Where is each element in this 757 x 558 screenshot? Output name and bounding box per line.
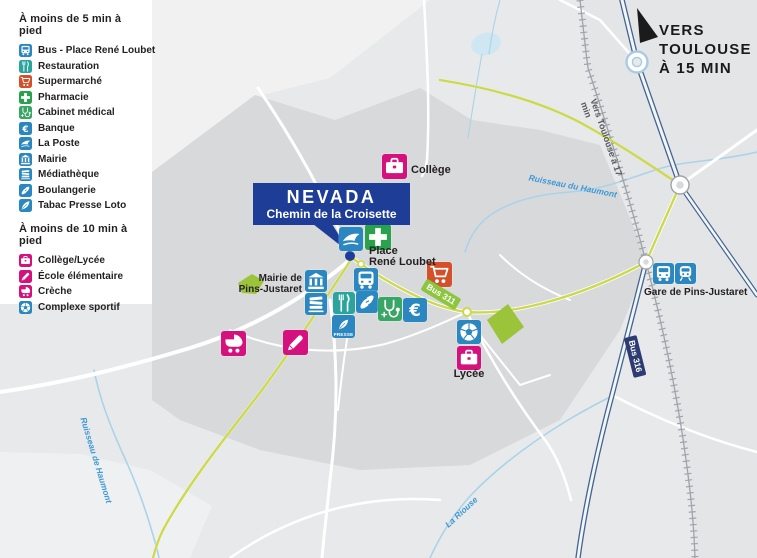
cart-icon (19, 75, 32, 88)
legend-item-label: La Poste (38, 138, 80, 149)
legend-item-complexe-sportif: Complexe sportif (19, 301, 146, 314)
laposte-icon (339, 227, 363, 251)
elementary-school-icon (283, 330, 308, 355)
stroller-icon (19, 285, 32, 298)
legend-item-label: Banque (38, 123, 75, 134)
press-tobacco-icon: PRESSE (332, 315, 355, 338)
lycee-icon (457, 346, 481, 370)
destination-line3: À 15 MIN (659, 59, 752, 78)
place-label-line2: René Loubet (369, 257, 436, 268)
pencil-icon (19, 270, 32, 283)
legend-item-bus: Bus - Place René Loubet (19, 44, 146, 57)
bus-stop-icon (354, 268, 378, 292)
legend-item-creche: Crèche (19, 285, 146, 298)
legend-item-supermarche: Supermarché (19, 75, 146, 88)
nursery-icon (221, 331, 246, 356)
restaurant-icon (19, 60, 32, 73)
legend-item-label: Boulangerie (38, 185, 96, 196)
mairie-label-line1: Mairie de (232, 274, 302, 285)
location-map: PRESSE Collège Place René Loubet Mairie … (0, 0, 757, 558)
legend-item-label: Cabinet médical (38, 107, 115, 118)
laposte-bird-icon (19, 137, 32, 150)
legend-item-label: Restauration (38, 61, 99, 72)
legend-item-label: Supermarché (38, 76, 102, 87)
bus-icon (19, 44, 32, 57)
legend-item-boulangerie: Boulangerie (19, 184, 146, 197)
project-name: NEVADA (287, 188, 377, 207)
quill-icon (19, 199, 32, 212)
legend-panel: À moins de 5 min à pied Bus - Place René… (0, 0, 152, 304)
bakery-icon (356, 291, 378, 313)
legend-item-label: École élémentaire (38, 271, 123, 282)
gare-label: Gare de Pins-Justaret (644, 287, 747, 298)
legend-item-label: Mairie (38, 154, 67, 165)
sports-complex-icon (457, 320, 481, 344)
legend-item-pharmacie: Pharmacie (19, 91, 146, 104)
college-label: Collège (411, 164, 451, 176)
destination-line1: VERS (659, 21, 752, 40)
presse-label: PRESSE (334, 332, 354, 337)
mairie-label-line2: Pins-Justaret (232, 285, 302, 296)
cross-icon (19, 91, 32, 104)
legend-item-label: Complexe sportif (38, 302, 120, 313)
lycee-label: Lycée (451, 368, 487, 380)
legend-item-label: Crèche (38, 286, 72, 297)
station-bus-icon (653, 263, 674, 284)
mairie-label: Mairie de Pins-Justaret (232, 274, 302, 295)
stethoscope-icon (19, 106, 32, 119)
legend-item-college-lycee: Collège/Lycée (19, 254, 146, 267)
legend-item-la-poste: La Poste (19, 137, 146, 150)
library-icon (305, 293, 327, 315)
legend-item-label: Pharmacie (38, 92, 89, 103)
medical-office-icon (378, 297, 402, 321)
station-train-icon (675, 263, 696, 284)
legend-title-5min: À moins de 5 min à pied (19, 13, 146, 37)
soccer-ball-icon (19, 301, 32, 314)
legend-item-cabinet-medical: Cabinet médical (19, 106, 146, 119)
legend-item-ecole: École élémentaire (19, 270, 146, 283)
legend-item-banque: Banque (19, 122, 146, 135)
euro-icon (19, 122, 32, 135)
legend-item-tabac-presse: Tabac Presse Loto (19, 199, 146, 212)
legend-item-label: Tabac Presse Loto (38, 200, 126, 211)
books-icon (19, 168, 32, 181)
legend-title-10min: À moins de 10 min à pied (19, 223, 146, 247)
townhall-icon (305, 270, 327, 292)
restaurant-icon (333, 292, 355, 314)
briefcase-icon (19, 254, 32, 267)
legend-item-label: Collège/Lycée (38, 255, 105, 266)
legend-item-mediatheque: Médiathèque (19, 168, 146, 181)
baguette-icon (19, 184, 32, 197)
legend-item-label: Médiathèque (38, 169, 99, 180)
project-address: Chemin de la Croisette (266, 207, 396, 221)
college-icon (382, 154, 407, 179)
project-callout: NEVADA Chemin de la Croisette (253, 183, 410, 225)
bank-icon (403, 298, 427, 322)
destination-line2: TOULOUSE (659, 40, 752, 59)
place-rene-loubet-label: Place René Loubet (369, 246, 436, 268)
legend-item-label: Bus - Place René Loubet (38, 45, 155, 56)
legend-item-restauration: Restauration (19, 60, 146, 73)
legend-item-mairie: Mairie (19, 153, 146, 166)
destination-toulouse: VERS TOULOUSE À 15 MIN (659, 21, 752, 78)
townhall-icon (19, 153, 32, 166)
